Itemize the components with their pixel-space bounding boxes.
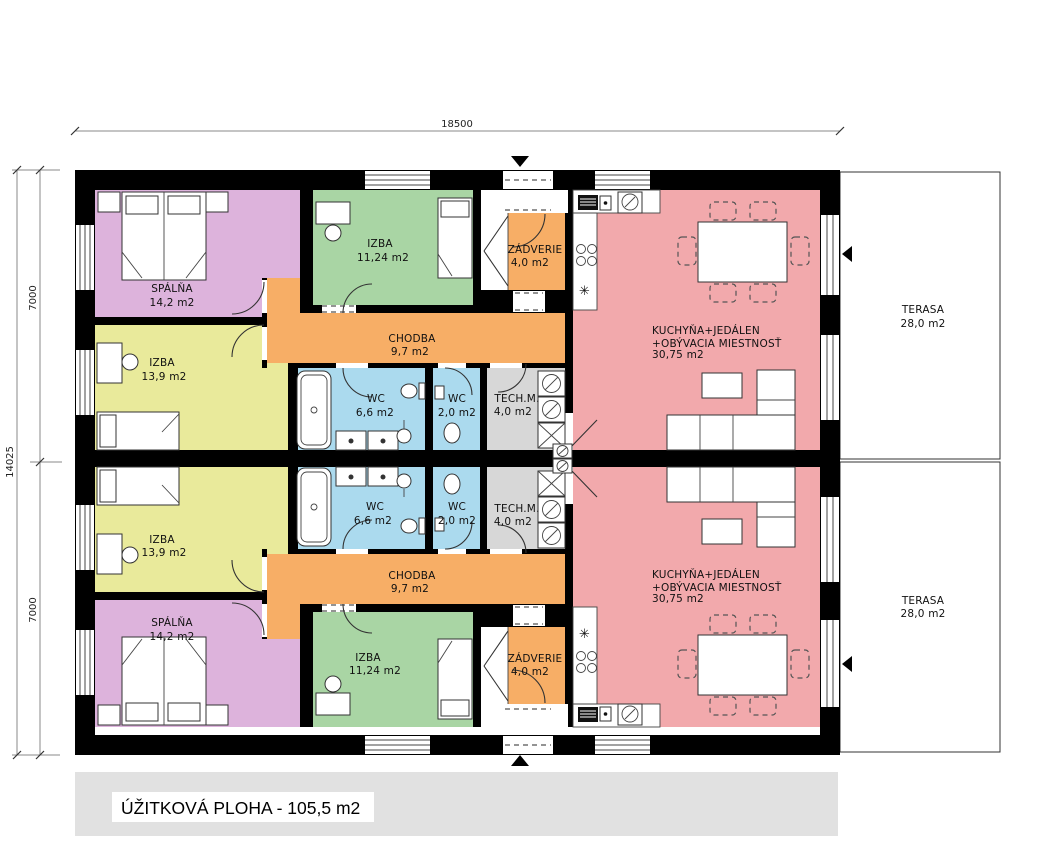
room-area: 4,0 m2	[494, 406, 532, 418]
bathtub	[297, 468, 331, 546]
room-name: KUCHYŇA+JEDÁLEN	[652, 324, 760, 337]
dining-table	[698, 635, 787, 695]
toilet	[401, 383, 425, 399]
desk	[316, 693, 350, 715]
fridge-icon	[618, 192, 642, 213]
dimension-height-top-label: 7000	[28, 285, 39, 310]
dimension-height-bottom-label: 7000	[28, 597, 39, 622]
room-name: SPÁLŇA	[151, 616, 193, 629]
double-bed	[122, 192, 206, 280]
glass-door	[821, 620, 839, 707]
snowflake-icon: ✳	[579, 284, 590, 299]
toilet	[444, 474, 460, 494]
nightstand	[206, 705, 228, 725]
bathtub	[297, 371, 331, 449]
fridge-icon	[618, 704, 642, 725]
room-name: KUCHYŇA+JEDÁLEN	[652, 568, 760, 581]
nightstand	[206, 192, 228, 212]
room-name: IZBA	[367, 238, 393, 250]
chair	[325, 676, 341, 692]
floor-plan-page: 18500 14025 7000 7000 TERASA 28,0 m2 TER…	[0, 0, 1053, 844]
room-name: ZÁDVERIE	[508, 652, 563, 665]
desk	[97, 343, 122, 383]
room-area: 14,2 m2	[149, 631, 194, 643]
room-area: 4,0 m2	[511, 257, 549, 269]
washbasin	[368, 431, 398, 450]
snowflake-icon: ✳	[579, 627, 590, 642]
room-name: WC	[448, 393, 466, 405]
washbasin	[336, 467, 366, 486]
room-name: TECH.M.	[493, 503, 539, 515]
kitchen-sink-icon	[578, 195, 611, 210]
glass-door	[821, 215, 839, 295]
toilet	[401, 518, 425, 534]
dimension-width-label: 18500	[441, 119, 473, 130]
chair	[122, 547, 138, 563]
coffee-table	[702, 373, 742, 398]
window	[365, 736, 430, 754]
washbasin	[336, 431, 366, 450]
washer-icon	[538, 371, 565, 396]
terrace-area: 28,0 m2	[900, 608, 945, 620]
room-name: SPÁLŇA	[151, 282, 193, 295]
room-area: 4,0 m2	[511, 666, 549, 678]
dimension-height-total-label: 14025	[5, 446, 16, 478]
room-name: CHODBA	[388, 570, 436, 582]
room-area: 11,24 m2	[349, 665, 401, 677]
washer-icon	[538, 497, 565, 522]
window	[76, 225, 94, 290]
window	[595, 171, 650, 189]
desk	[316, 202, 350, 224]
entrance-arrow-icon	[511, 156, 529, 167]
meter-icon	[553, 459, 572, 473]
desk	[97, 534, 122, 574]
stove-icon	[577, 652, 597, 673]
dimension-top: 18500	[71, 119, 844, 135]
terrace-bottom: TERASA 28,0 m2	[840, 462, 1000, 752]
floor-plan-drawing: 18500 14025 7000 7000 TERASA 28,0 m2 TER…	[0, 0, 1053, 844]
window	[76, 505, 94, 570]
front-door-icon	[484, 631, 508, 701]
single-bed	[438, 639, 472, 719]
room-area: 30,75 m2	[652, 349, 704, 361]
washbasin	[368, 467, 398, 486]
room-name: WC	[366, 501, 384, 513]
window	[365, 171, 430, 189]
room-area: 6,6 m2	[356, 407, 394, 419]
single-bed	[97, 467, 179, 505]
meter-icon	[553, 444, 572, 458]
nightstand	[98, 192, 120, 212]
chair	[325, 225, 341, 241]
washer-icon	[538, 397, 565, 422]
room-name: IZBA	[149, 357, 175, 369]
nightstand	[98, 705, 120, 725]
room-name: IZBA	[149, 534, 175, 546]
chair	[122, 354, 138, 370]
room-name: CHODBA	[388, 333, 436, 345]
room-area: 11,24 m2	[357, 252, 409, 264]
room-name: WC	[367, 393, 385, 405]
entrance-arrow-icon	[511, 755, 529, 766]
room-area: 30,75 m2	[652, 593, 704, 605]
window	[595, 736, 650, 754]
room-area: 14,2 m2	[149, 297, 194, 309]
room-area: 4,0 m2	[494, 516, 532, 528]
glass-door	[821, 497, 839, 582]
kitchen-sink-icon	[578, 707, 611, 722]
footer-bar: ÚŽITKOVÁ PLOHA - 105,5 m2	[75, 772, 838, 836]
usable-area-label: ÚŽITKOVÁ PLOHA - 105,5 m2	[121, 797, 360, 818]
tank-icon	[538, 471, 565, 496]
dining-table	[698, 222, 787, 282]
room-area: 9,7 m2	[391, 346, 429, 358]
room-area: 13,9 m2	[141, 547, 186, 559]
window	[76, 630, 94, 695]
front-door-icon	[484, 216, 508, 286]
room-name: ZÁDVERIE	[508, 243, 563, 256]
terrace-top: TERASA 28,0 m2	[840, 172, 1000, 459]
room-area: 13,9 m2	[141, 371, 186, 383]
toilet	[444, 423, 460, 443]
room-area: 6,6 m2	[354, 515, 392, 527]
room-name: TECH.M.	[493, 393, 539, 405]
single-bed	[97, 412, 179, 450]
washbasin	[435, 386, 444, 399]
window	[76, 350, 94, 415]
terrace-name: TERASA	[901, 595, 945, 607]
dimension-left: 14025 7000 7000	[5, 166, 62, 759]
stove-icon	[577, 245, 597, 266]
glass-door	[821, 335, 839, 420]
washer-icon	[538, 523, 565, 548]
terrace-name: TERASA	[901, 304, 945, 316]
room-name: IZBA	[355, 652, 381, 664]
single-bed	[438, 198, 472, 278]
terrace-area: 28,0 m2	[900, 318, 945, 330]
room-area: 2,0 m2	[438, 407, 476, 419]
coffee-table	[702, 519, 742, 544]
double-bed	[122, 637, 206, 725]
room-area: 9,7 m2	[391, 583, 429, 595]
room-name: WC	[448, 501, 466, 513]
room-area: 2,0 m2	[438, 515, 476, 527]
